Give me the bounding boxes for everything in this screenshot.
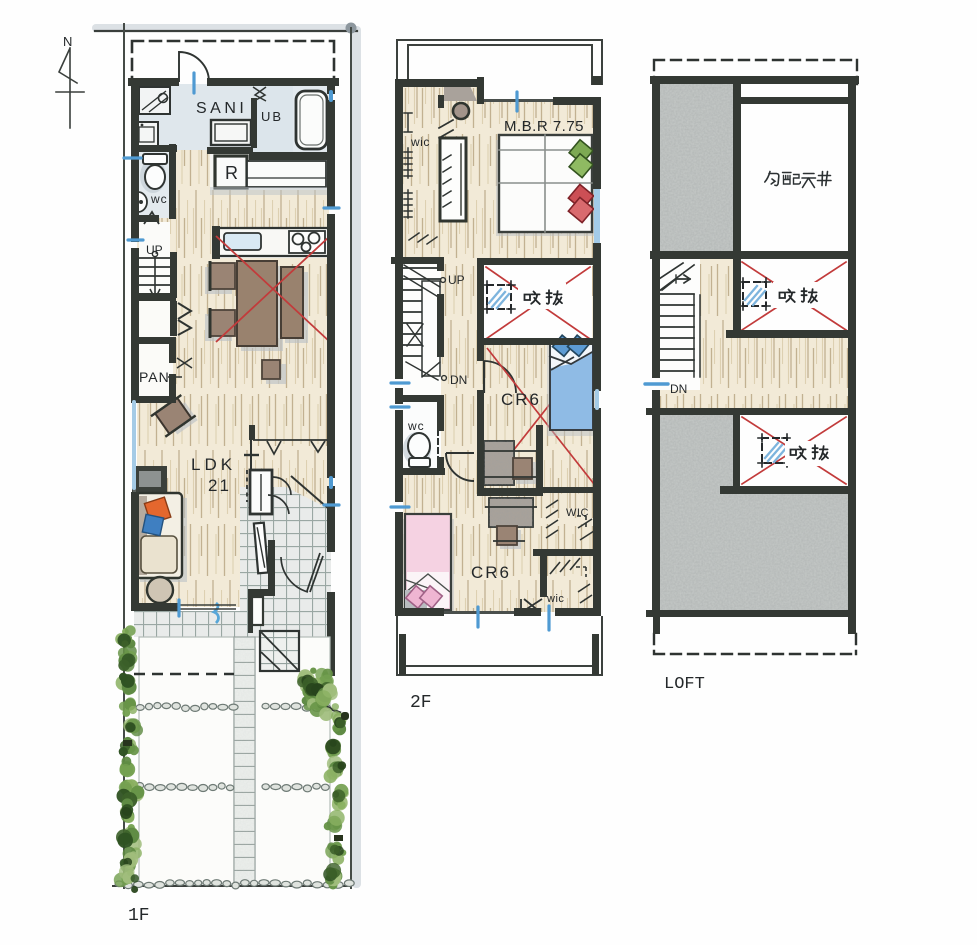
svg-text:wc: wc bbox=[407, 419, 425, 433]
svg-text:M.B.R 7.75: M.B.R 7.75 bbox=[504, 118, 584, 135]
svg-text:LDK: LDK bbox=[191, 455, 236, 474]
svg-text:LOFT: LOFT bbox=[664, 675, 705, 694]
svg-text:UP: UP bbox=[146, 243, 163, 257]
svg-text:2F: 2F bbox=[410, 693, 432, 713]
svg-text:wic: wic bbox=[410, 135, 430, 149]
svg-text:wc: wc bbox=[150, 192, 168, 206]
svg-text:WIC: WIC bbox=[566, 507, 589, 519]
svg-text:CR6: CR6 bbox=[501, 390, 541, 409]
svg-text:1F: 1F bbox=[128, 906, 150, 926]
svg-text:CR6: CR6 bbox=[471, 563, 511, 582]
svg-text:N: N bbox=[63, 34, 72, 49]
svg-text:UP: UP bbox=[448, 273, 465, 287]
svg-text:UB: UB bbox=[261, 109, 283, 124]
svg-text:DN: DN bbox=[670, 382, 687, 396]
svg-text:21: 21 bbox=[208, 476, 231, 495]
svg-text:R: R bbox=[225, 163, 238, 183]
svg-text:DN: DN bbox=[450, 373, 467, 387]
svg-text:wic: wic bbox=[546, 593, 564, 605]
svg-text:PAN: PAN bbox=[139, 369, 170, 385]
svg-text:SANI: SANI bbox=[196, 100, 247, 117]
